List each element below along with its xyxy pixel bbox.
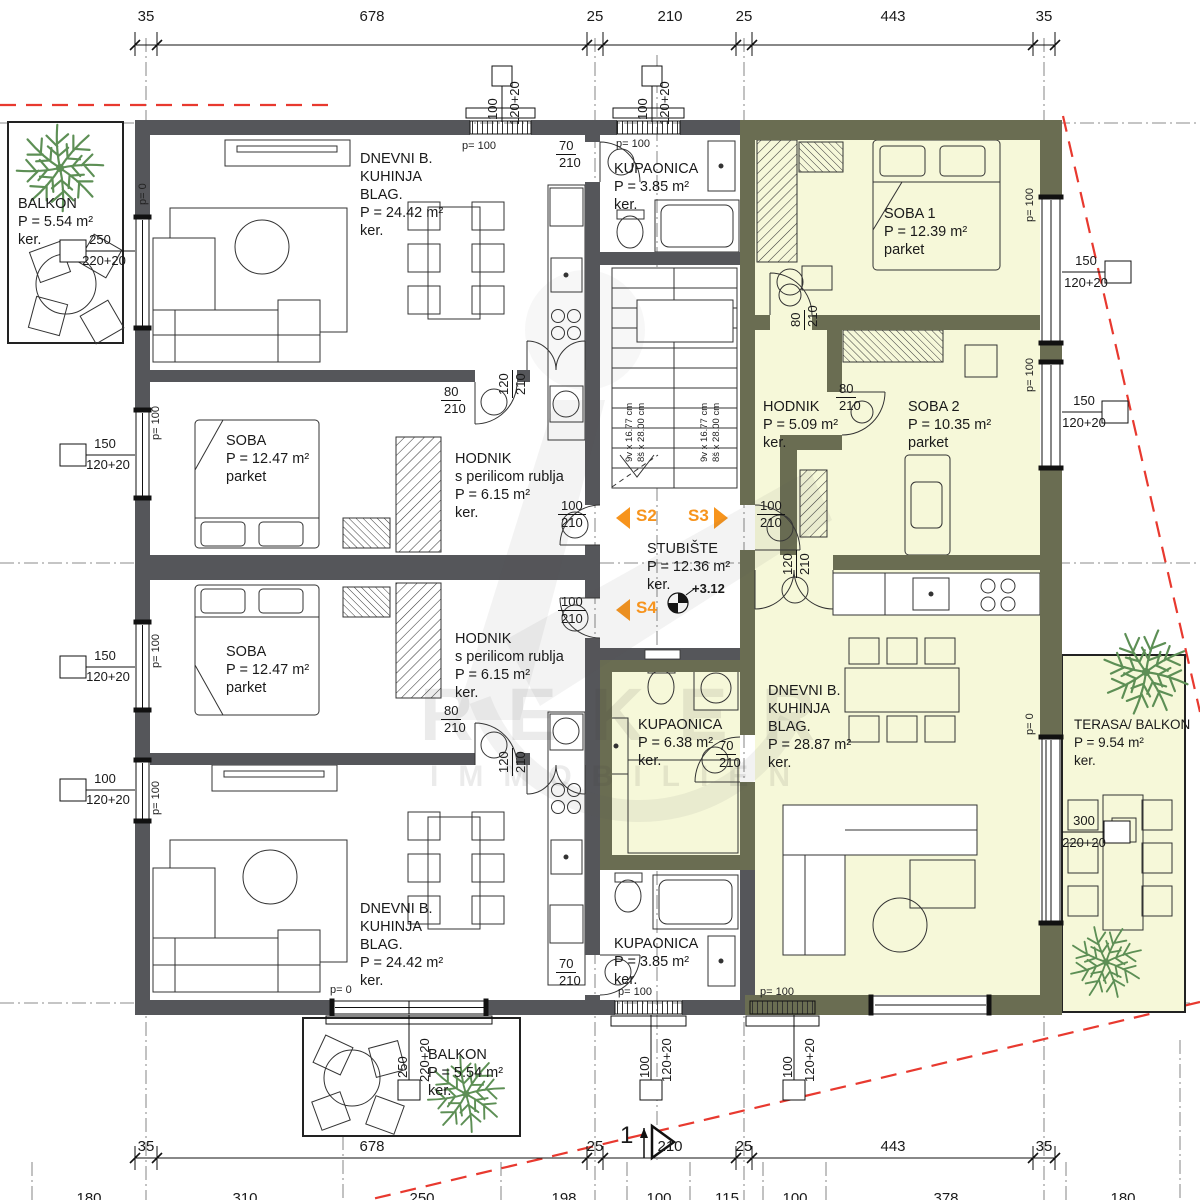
door-size-70-top: 70210 <box>556 138 584 170</box>
door-size-120-tl: 120210 <box>496 370 528 398</box>
room-label-soba-bottom-left: SOBAP = 12.47 m²parket <box>226 643 309 697</box>
parapet-label-p100-right1: p= 100 <box>1024 188 1036 222</box>
room-label-soba-top-left: SOBAP = 12.47 m²parket <box>226 432 309 486</box>
stair-run-note-1: 9v x 16.77 cm8š x 28.00 cm <box>624 403 648 462</box>
callout-window-top2-w: 100 <box>635 98 650 120</box>
dim-top-2: 25 <box>587 8 604 25</box>
door-size-120-right: 120210 <box>780 550 812 578</box>
watermark-sub: IMMOBILIEN <box>430 760 810 794</box>
parapet-label-p100-top2: p= 100 <box>616 138 650 150</box>
dim-bottom2-2: 250 <box>409 1190 434 1200</box>
window-left-3 <box>134 758 151 823</box>
dim-top-0: 35 <box>138 8 155 25</box>
parapet-label-p100-left3: p= 100 <box>150 781 162 815</box>
parapet-label-p100-left2: p= 100 <box>150 634 162 668</box>
window-right-2 <box>1039 360 1063 470</box>
parapet-label-p0-right: p= 0 <box>1024 713 1036 735</box>
dim-bottom-1: 678 <box>359 1138 384 1155</box>
stair-marker-s2: S2 <box>636 506 657 526</box>
dim-bottom-5: 443 <box>880 1138 905 1155</box>
room-label-terasa: TERASA/ BALKONP = 9.54 m²ker. <box>1074 716 1190 770</box>
callout-window-150r1-w: 150 <box>1075 253 1097 268</box>
callout-window-bot1-w: 250 <box>395 1056 410 1078</box>
shaft-niche <box>645 650 680 659</box>
parapet-label-p100-right2: p= 100 <box>1024 358 1036 392</box>
window-left-2 <box>134 620 151 712</box>
room-label-soba2: SOBA 2P = 10.35 m²parket <box>908 398 991 452</box>
callout-window-bot3-w: 100 <box>780 1056 795 1078</box>
door-size-80-tl: 80210 <box>441 384 469 416</box>
watermark-brand: REKER <box>420 672 849 757</box>
dim-top-1: 678 <box>359 8 384 25</box>
callout-window-bot2-h: 120+20 <box>659 1038 674 1082</box>
dim-bottom-0: 35 <box>138 1138 155 1155</box>
dim-bottom2-6: 100 <box>782 1190 807 1200</box>
window-balcony-door-left <box>134 215 151 330</box>
door-size-70-bottom: 70210 <box>556 956 584 988</box>
room-label-balkon-bottom: BALKONP = 5.54 m²ker. <box>428 1046 503 1100</box>
callout-window-300-h: 220+20 <box>1062 835 1106 850</box>
window-parapet-bottom-2 <box>746 1001 819 1026</box>
callout-window-100l-w: 100 <box>94 771 116 786</box>
room-label-balkon-top-left: BALKONP = 5.54 m²ker. <box>18 195 93 249</box>
door-size-100-stair2: 100210 <box>558 594 586 626</box>
callout-window-150a-w: 150 <box>94 436 116 451</box>
window-parapet-bottom-1 <box>611 1001 686 1026</box>
parapet-label-p100-bottom2: p= 100 <box>760 986 794 998</box>
callout-window-300-w: 300 <box>1073 813 1095 828</box>
callout-window-150a-h: 120+20 <box>86 457 130 472</box>
room-label-hodnik-right: HODNIKP = 5.09 m²ker. <box>763 398 838 452</box>
callout-window-150b-w: 150 <box>94 648 116 663</box>
parapet-label-p100-top1: p= 100 <box>462 140 496 152</box>
room-label-dnevni-top-left: DNEVNI B.KUHINJABLAG.P = 24.42 m²ker. <box>360 150 443 240</box>
callout-window-top2-h: 120+20 <box>657 81 672 125</box>
window-terrace-door <box>1039 735 1063 925</box>
room-label-kupaonica-top: KUPAONICAP = 3.85 m²ker. <box>614 160 698 214</box>
parapet-label-p0-left: p= 0 <box>137 183 149 205</box>
room-label-soba1: SOBA 1P = 12.39 m²parket <box>884 205 967 259</box>
dim-top-3: 210 <box>657 8 682 25</box>
dim-top-6: 35 <box>1036 8 1053 25</box>
callout-window-150r2-w: 150 <box>1073 393 1095 408</box>
door-size-80-soba1: 80210 <box>788 302 820 330</box>
stair-marker-s3: S3 <box>688 506 709 526</box>
parapet-label-p100-bottom1: p= 100 <box>618 986 652 998</box>
window-right-1 <box>1039 195 1063 345</box>
section-marker-number: 1 <box>620 1122 633 1150</box>
window-left-1 <box>134 408 151 500</box>
dim-bottom2-4: 100 <box>646 1190 671 1200</box>
dim-bottom-2: 25 <box>587 1138 604 1155</box>
dim-top-5: 443 <box>880 8 905 25</box>
door-size-100-entry-right: 100210 <box>757 498 785 530</box>
room-label-dnevni-bottom-left: DNEVNI B.KUHINJABLAG.P = 24.42 m²ker. <box>360 900 443 990</box>
room-label-hodnik-top-left: HODNIKs perilicom rubljaP = 6.15 m²ker. <box>455 450 564 522</box>
stair-marker-s4: S4 <box>636 598 657 618</box>
door-size-80-soba2: 80210 <box>836 381 864 413</box>
callout-window-150r2-h: 120+20 <box>1062 415 1106 430</box>
dim-bottom2-7: 378 <box>933 1190 958 1200</box>
callout-window-bot2-w: 100 <box>637 1056 652 1078</box>
room-label-kupaonica-bottom: KUPAONICAP = 3.85 m²ker. <box>614 935 698 989</box>
callout-window-bot3-h: 120+20 <box>802 1038 817 1082</box>
dim-bottom2-8: 180 <box>1110 1190 1135 1200</box>
callout-window-top1-w: 100 <box>485 98 500 120</box>
window-bottom-right <box>869 995 991 1015</box>
parapet-label-p100-left1: p= 100 <box>150 406 162 440</box>
dim-bottom2-3: 198 <box>551 1190 576 1200</box>
dim-bottom2-1: 310 <box>232 1190 257 1200</box>
window-parapet-top-1 <box>466 108 535 134</box>
stair-run-note-2: 9v x 16.77 cm8š x 28.00 cm <box>699 403 723 462</box>
parapet-label-p0-bottom: p= 0 <box>330 984 352 996</box>
callout-window-100l-h: 120+20 <box>86 792 130 807</box>
callout-window-250-w: 250 <box>89 232 111 247</box>
dim-bottom-4: 25 <box>736 1138 753 1155</box>
callout-window-250-h: 220+20 <box>82 253 126 268</box>
level-marker-value: +3.12 <box>692 581 725 596</box>
callout-window-150r1-h: 120+20 <box>1064 275 1108 290</box>
dim-bottom-3: 210 <box>657 1138 682 1155</box>
callout-window-top1-h: 120+20 <box>507 81 522 125</box>
dim-bottom-6: 35 <box>1036 1138 1053 1155</box>
dim-bottom2-5: 115 <box>715 1190 739 1200</box>
floor-plan: 35 678 25 210 25 443 35 35 678 25 210 25… <box>0 0 1200 1200</box>
door-size-100-stair1: 100210 <box>558 498 586 530</box>
plan-drawing <box>0 0 1200 1200</box>
dim-bottom2-0: 180 <box>76 1190 101 1200</box>
dim-top-4: 25 <box>736 8 753 25</box>
callout-window-bot1-h: 220+20 <box>417 1038 432 1082</box>
callout-window-150b-h: 120+20 <box>86 669 130 684</box>
